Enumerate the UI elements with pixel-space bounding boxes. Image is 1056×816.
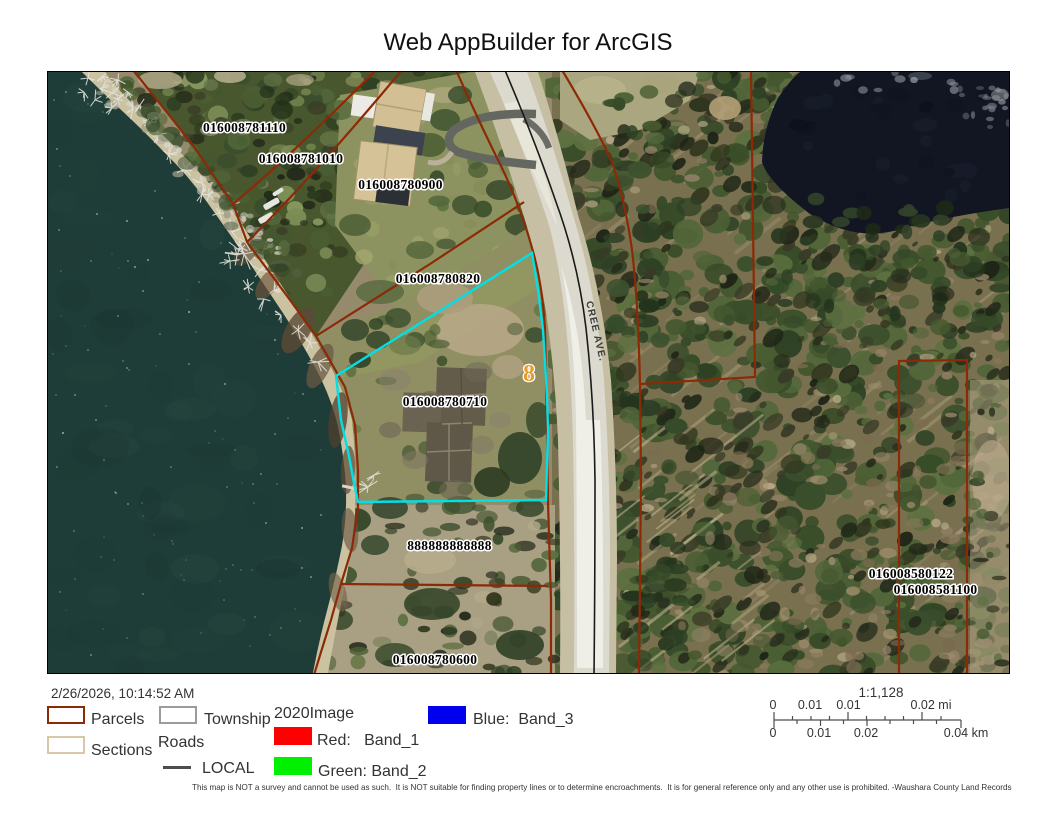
svg-text:0.04 km: 0.04 km — [944, 726, 988, 740]
svg-text:0.01: 0.01 — [836, 698, 860, 712]
svg-text:8: 8 — [523, 361, 535, 387]
svg-text:016008781110: 016008781110 — [203, 120, 286, 135]
svg-text:1:1,128: 1:1,128 — [858, 685, 903, 700]
svg-text:016008780900: 016008780900 — [358, 177, 443, 192]
svg-text:016008581100: 016008581100 — [894, 582, 978, 597]
svg-text:016008780710: 016008780710 — [403, 394, 488, 409]
svg-text:0.02: 0.02 — [854, 726, 878, 740]
svg-text:016008780820: 016008780820 — [396, 271, 481, 286]
svg-text:016008781010: 016008781010 — [259, 151, 344, 166]
svg-text:0: 0 — [770, 698, 777, 712]
svg-text:016008780600: 016008780600 — [393, 652, 478, 667]
svg-text:0.01: 0.01 — [798, 698, 822, 712]
svg-text:0: 0 — [770, 726, 777, 740]
svg-text:0.01: 0.01 — [807, 726, 831, 740]
svg-text:0.02 mi: 0.02 mi — [911, 698, 952, 712]
svg-text:888888888888: 888888888888 — [407, 538, 492, 553]
svg-text:016008580122: 016008580122 — [869, 566, 954, 581]
